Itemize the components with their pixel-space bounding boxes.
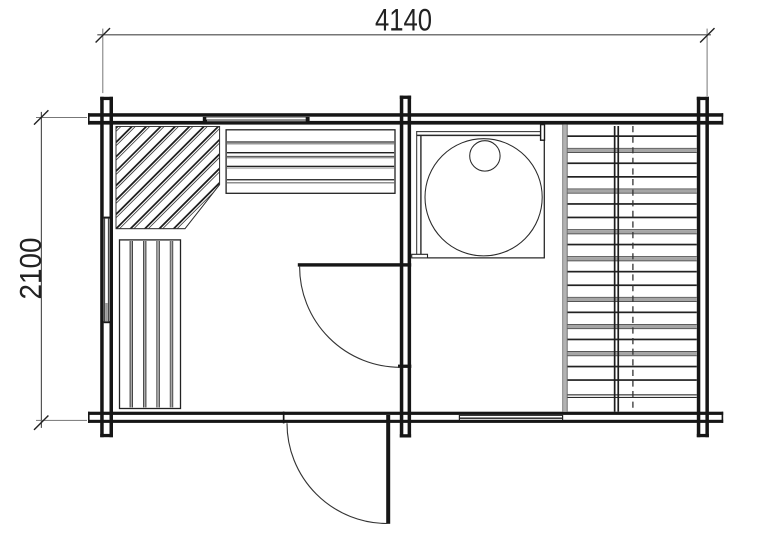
svg-text:4140: 4140 (375, 2, 432, 38)
svg-text:2100: 2100 (14, 238, 48, 300)
